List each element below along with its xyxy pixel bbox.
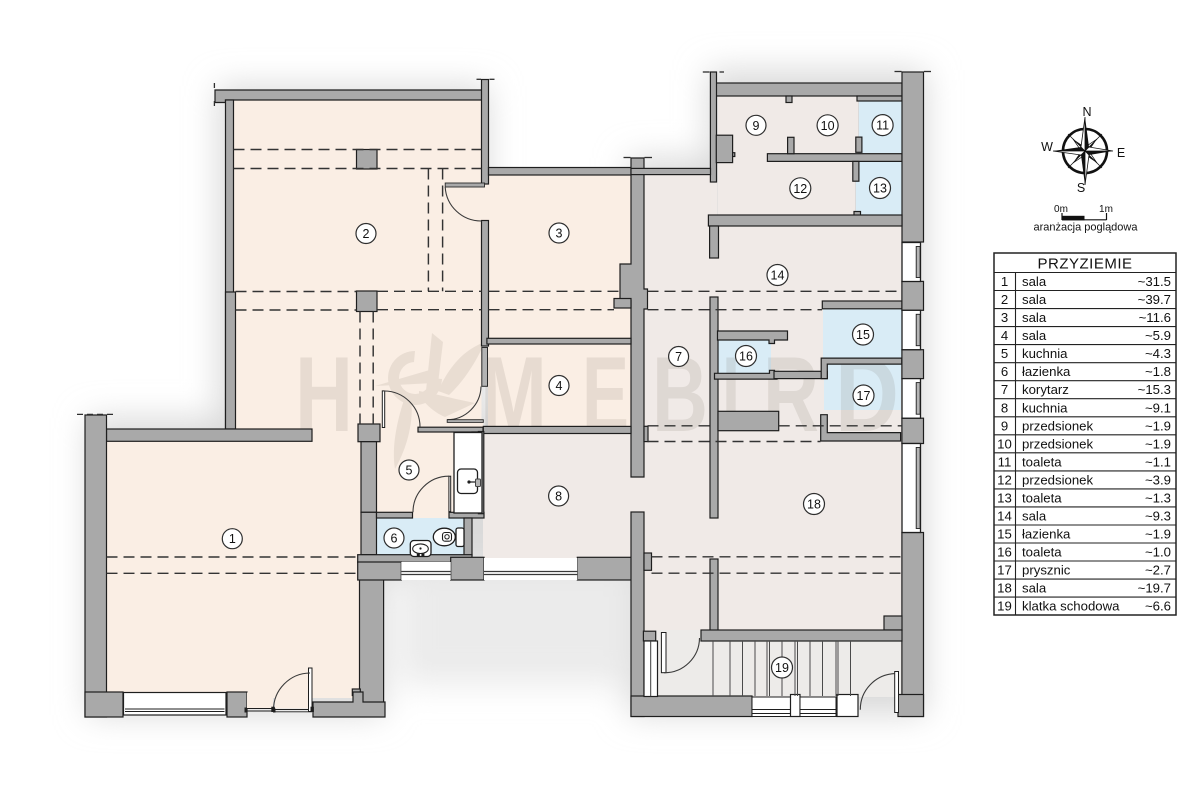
svg-text:7: 7 xyxy=(1001,382,1008,397)
svg-text:W: W xyxy=(1041,140,1053,154)
svg-text:18: 18 xyxy=(997,581,1012,596)
svg-text:kuchnia: kuchnia xyxy=(1022,346,1068,361)
svg-text:1: 1 xyxy=(1001,274,1008,289)
svg-text:~1.0: ~1.0 xyxy=(1145,545,1171,560)
svg-text:15: 15 xyxy=(997,527,1012,542)
svg-text:8: 8 xyxy=(1001,400,1008,415)
svg-text:łazienka: łazienka xyxy=(1022,364,1071,379)
svg-text:18: 18 xyxy=(807,498,821,512)
svg-text:10: 10 xyxy=(821,119,835,133)
svg-text:16: 16 xyxy=(739,350,753,364)
svg-text:aranżacja poglądowa: aranżacja poglądowa xyxy=(1034,222,1139,234)
svg-text:klatka schodowa: klatka schodowa xyxy=(1022,599,1120,614)
svg-text:M: M xyxy=(480,334,547,454)
svg-text:~1.1: ~1.1 xyxy=(1145,454,1171,469)
svg-text:~9.3: ~9.3 xyxy=(1145,509,1171,524)
svg-text:12: 12 xyxy=(997,472,1012,487)
svg-text:9: 9 xyxy=(1001,418,1008,433)
svg-text:6: 6 xyxy=(1001,364,1008,379)
svg-text:12: 12 xyxy=(793,182,807,196)
svg-text:przedsionek: przedsionek xyxy=(1022,418,1094,433)
svg-text:~15.3: ~15.3 xyxy=(1138,382,1171,397)
svg-text:~1.9: ~1.9 xyxy=(1145,418,1171,433)
svg-text:4: 4 xyxy=(556,379,563,393)
svg-text:~39.7: ~39.7 xyxy=(1138,292,1171,307)
svg-text:przedsionek: przedsionek xyxy=(1022,472,1094,487)
svg-text:łazienka: łazienka xyxy=(1022,527,1071,542)
svg-text:5: 5 xyxy=(1001,346,1008,361)
svg-text:0m: 0m xyxy=(1054,204,1068,215)
svg-text:2: 2 xyxy=(1001,292,1008,307)
svg-text:przedsionek: przedsionek xyxy=(1022,436,1094,451)
svg-text:R: R xyxy=(763,334,819,454)
svg-text:prysznic: prysznic xyxy=(1022,563,1071,578)
svg-text:~4.3: ~4.3 xyxy=(1145,346,1171,361)
svg-text:17: 17 xyxy=(857,389,871,403)
svg-text:14: 14 xyxy=(997,509,1012,524)
svg-text:8: 8 xyxy=(555,490,562,504)
svg-text:~11.6: ~11.6 xyxy=(1139,310,1171,325)
svg-text:sala: sala xyxy=(1022,274,1047,289)
svg-text:~19.7: ~19.7 xyxy=(1138,581,1171,596)
svg-text:N: N xyxy=(1082,105,1091,119)
svg-text:~1.9: ~1.9 xyxy=(1145,436,1171,451)
svg-text:~6.6: ~6.6 xyxy=(1145,599,1171,614)
svg-text:19: 19 xyxy=(997,599,1012,614)
svg-text:~1.9: ~1.9 xyxy=(1145,527,1171,542)
svg-text:4: 4 xyxy=(1001,328,1008,343)
svg-text:~1.8: ~1.8 xyxy=(1145,364,1171,379)
svg-text:17: 17 xyxy=(997,563,1012,578)
svg-text:~3.9: ~3.9 xyxy=(1145,472,1171,487)
svg-text:toaleta: toaleta xyxy=(1022,454,1062,469)
svg-text:toaleta: toaleta xyxy=(1022,545,1062,560)
svg-text:~2.7: ~2.7 xyxy=(1145,563,1171,578)
svg-text:19: 19 xyxy=(775,661,789,675)
svg-text:11: 11 xyxy=(876,119,889,133)
svg-text:~5.9: ~5.9 xyxy=(1145,328,1171,343)
svg-text:1: 1 xyxy=(229,532,236,546)
svg-text:14: 14 xyxy=(771,269,785,283)
svg-text:2: 2 xyxy=(363,227,370,241)
svg-text:~9.1: ~9.1 xyxy=(1145,400,1171,415)
svg-text:7: 7 xyxy=(675,350,682,364)
svg-text:korytarz: korytarz xyxy=(1022,382,1069,397)
svg-text:E: E xyxy=(1117,146,1125,160)
svg-text:kuchnia: kuchnia xyxy=(1022,400,1068,415)
svg-text:9: 9 xyxy=(753,119,760,133)
svg-text:~1.3: ~1.3 xyxy=(1145,490,1171,505)
svg-text:5: 5 xyxy=(406,464,413,478)
svg-text:sala: sala xyxy=(1022,292,1047,307)
svg-text:10: 10 xyxy=(997,436,1012,451)
svg-text:13: 13 xyxy=(873,182,887,196)
svg-text:PRZYZIEMIE: PRZYZIEMIE xyxy=(1037,256,1132,273)
svg-text:sala: sala xyxy=(1022,509,1047,524)
svg-text:3: 3 xyxy=(1001,310,1008,325)
svg-text:sala: sala xyxy=(1022,310,1047,325)
svg-text:3: 3 xyxy=(556,227,563,241)
svg-text:S: S xyxy=(1077,181,1085,195)
svg-text:E: E xyxy=(582,334,629,454)
svg-text:~31.5: ~31.5 xyxy=(1138,274,1171,289)
svg-text:16: 16 xyxy=(997,545,1012,560)
svg-text:toaleta: toaleta xyxy=(1022,490,1062,505)
svg-text:sala: sala xyxy=(1022,581,1047,596)
svg-text:13: 13 xyxy=(997,490,1012,505)
svg-text:sala: sala xyxy=(1022,328,1047,343)
svg-text:15: 15 xyxy=(856,328,870,342)
svg-text:11: 11 xyxy=(998,454,1012,469)
svg-text:6: 6 xyxy=(391,532,398,546)
